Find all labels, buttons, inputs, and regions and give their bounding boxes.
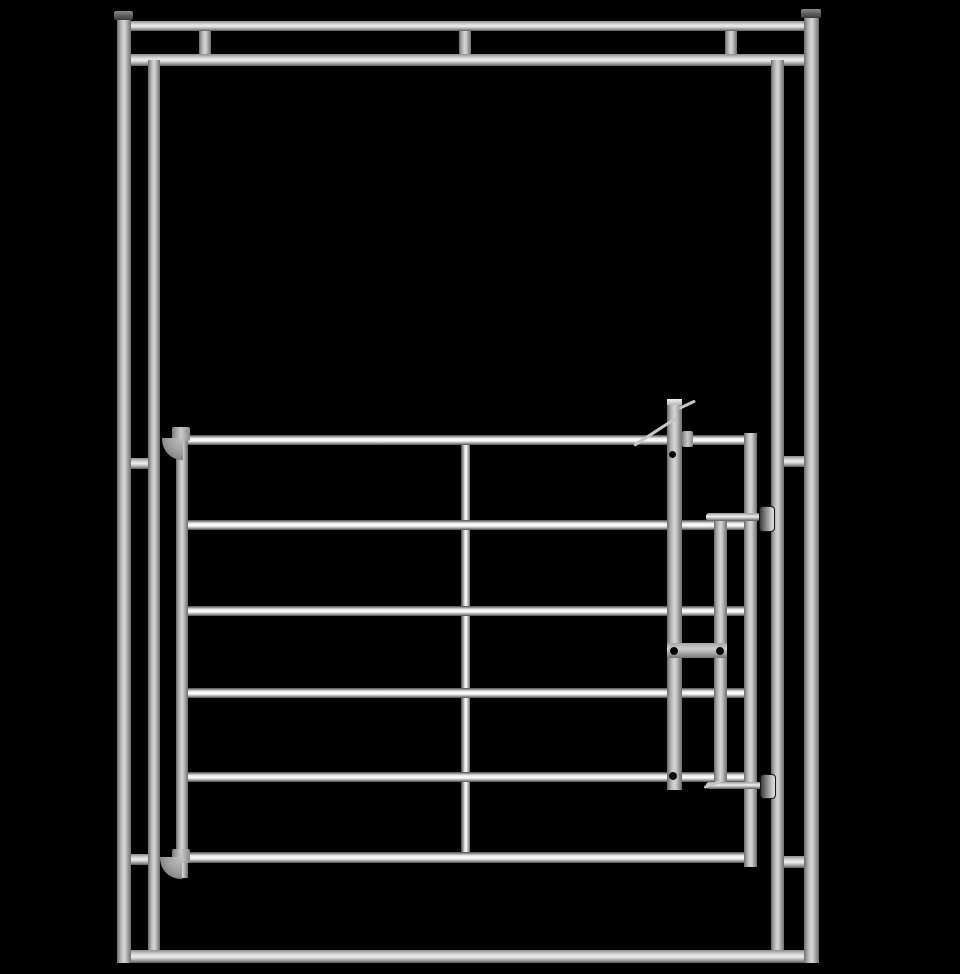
gate-rail-2	[184, 520, 750, 530]
latch-post	[667, 399, 682, 790]
top-hinge-curve	[162, 438, 183, 460]
outer-left-post-cap	[114, 11, 133, 20]
right-mid-connector	[783, 456, 805, 467]
frame-upper-rail	[130, 54, 808, 66]
gate-center-brace	[461, 440, 470, 858]
gate-rail-5	[184, 772, 750, 782]
gate-rail-3	[184, 606, 750, 616]
bottom-hinge-curve	[160, 857, 182, 879]
rail5-bolt-hole	[669, 772, 677, 780]
latch-post-top-face	[667, 399, 682, 405]
frame-bottom-rail	[122, 950, 807, 963]
outer-right-post-cap	[801, 9, 821, 18]
outer-left-post	[117, 14, 131, 963]
inner-left-post	[148, 60, 160, 950]
gate-panel-render	[0, 0, 960, 974]
top-connector-right	[725, 29, 737, 56]
plate-bolt-hole-right	[716, 647, 724, 655]
left-mid-connector	[130, 458, 149, 469]
inner-right-post	[771, 60, 784, 950]
gate-left-stile	[176, 429, 188, 878]
outer-right-post	[804, 12, 819, 963]
latch-post-bolt-hole	[669, 451, 676, 458]
gate-right-stile	[744, 433, 757, 867]
gate-rail-4	[184, 688, 750, 698]
right-lower-connector	[783, 856, 805, 868]
top-connector-middle	[459, 29, 471, 56]
top-latch-pin	[706, 513, 760, 521]
gate-rail-1	[184, 435, 750, 445]
plate-bolt-hole-left	[670, 647, 678, 655]
gate-rail-6	[184, 852, 754, 863]
frame-top-rail	[130, 21, 808, 31]
bottom-latch-knob	[760, 774, 776, 799]
top-connector-left	[199, 29, 211, 56]
left-lower-connector	[130, 854, 149, 865]
top-latch-knob	[759, 506, 775, 532]
latch-catch-bracket	[682, 431, 693, 447]
